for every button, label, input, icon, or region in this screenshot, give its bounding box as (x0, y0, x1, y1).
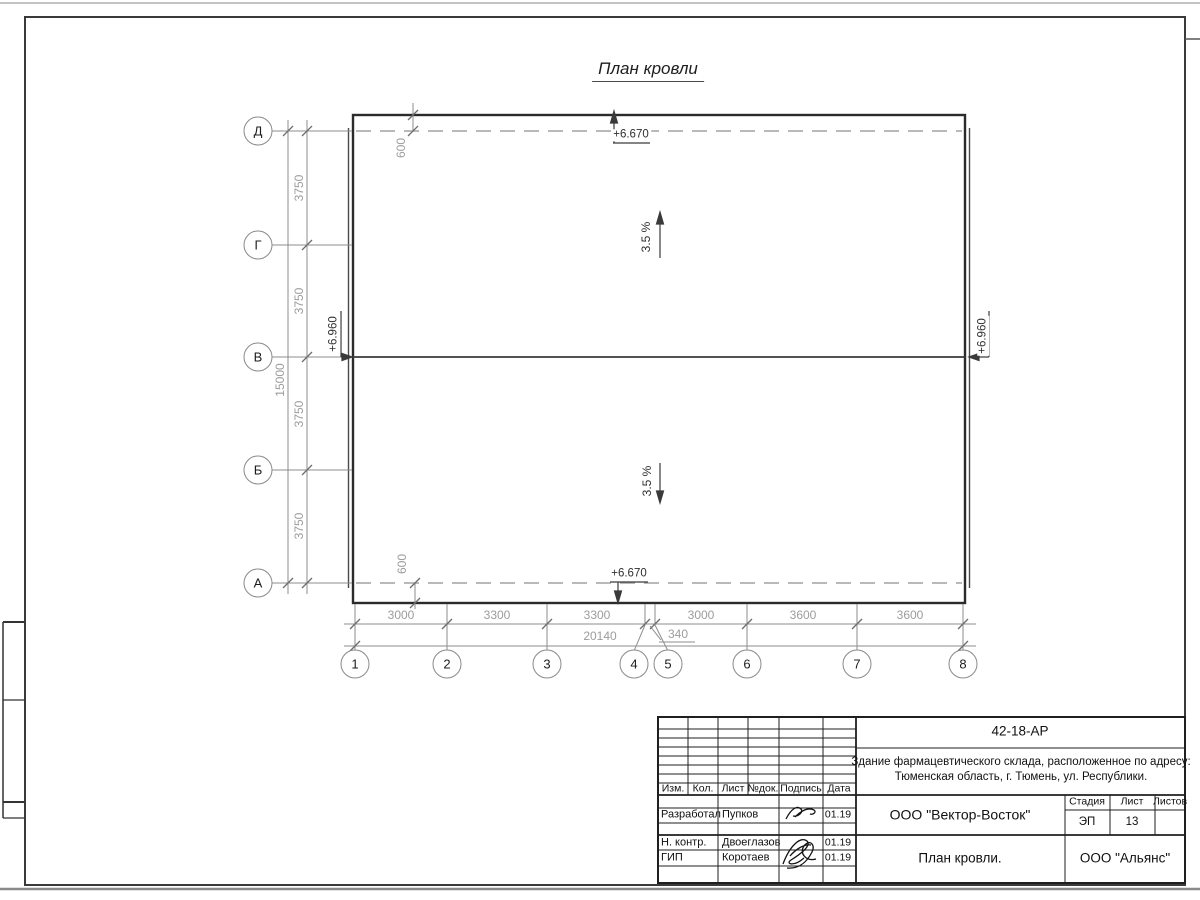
doc-code: 42-18-АР (991, 724, 1048, 741)
axis-bubble-row-d: Д (244, 117, 273, 146)
project-address-line1: Здание фармацевтического склада, располо… (851, 755, 1190, 769)
sheets-header: Листов (1153, 795, 1187, 808)
col-header-data: Дата (827, 782, 850, 795)
axis-bubble-row-g: Г (244, 231, 273, 260)
name-developer: Пупков (722, 810, 758, 821)
date-ncontrol: 01.19 (825, 836, 851, 849)
col-header-podpis: Подпись (780, 782, 822, 795)
col-header-kol: Кол. (693, 782, 714, 795)
axis-bubble-col-2: 2 (433, 650, 462, 679)
date-gip: 01.19 (825, 851, 851, 864)
dim-row-2: 3750 (293, 286, 305, 317)
dim-col-gap: 340 (666, 628, 690, 640)
stage-header: Стадия (1069, 795, 1105, 808)
sheet-number: 13 (1126, 815, 1139, 829)
slope-label-top: 3.5 % (640, 220, 652, 255)
dim-col-2: 3300 (482, 609, 513, 621)
design-org: ООО "Вектор-Восток" (890, 806, 1031, 824)
elevation-mark-left: +6.960 (328, 314, 340, 354)
axis-bubble-row-v: В (244, 343, 273, 372)
drawing-sheet: План кровли Д Г В Б А 1 2 3 4 5 6 7 8 37… (0, 0, 1200, 900)
axis-bubble-row-a: А (244, 569, 273, 598)
axis-bubble-col-4: 4 (620, 650, 649, 679)
axis-bubble-col-1: 1 (341, 650, 370, 679)
dim-col-6: 3600 (895, 609, 926, 621)
elevation-mark-top: +6.670 (611, 129, 651, 141)
dim-col-3: 3300 (582, 609, 613, 621)
signature-developer (786, 807, 815, 819)
name-gip: Коротаев (722, 853, 770, 864)
axis-bubble-col-5: 5 (654, 650, 683, 679)
dim-overhang-bottom: 600 (396, 552, 408, 576)
slope-label-bottom: 3.5 % (641, 464, 653, 499)
contractor-org: ООО "Альянс" (1080, 851, 1170, 868)
dim-col-1: 3000 (386, 609, 417, 621)
elevation-mark-right: +6.960 (977, 316, 989, 356)
dim-row-total: 15000 (274, 361, 286, 398)
role-ncontrol: Н. контр. (661, 838, 706, 849)
axis-bubble-col-6: 6 (733, 650, 762, 679)
sheet-title: План кровли. (918, 851, 1001, 868)
dim-row-4: 3750 (293, 511, 305, 542)
dim-overhang-top: 600 (395, 136, 407, 160)
axis-bubble-col-7: 7 (843, 650, 872, 679)
dim-row-1: 3750 (293, 173, 305, 204)
axis-bubble-row-b: Б (244, 456, 273, 485)
col-header-izm: Изм. (662, 782, 685, 795)
col-header-ndok: №док. (748, 782, 779, 795)
left-attribute-strip (3, 622, 25, 818)
project-address-line2: Тюменская область, г. Тюмень, ул. Респуб… (895, 770, 1148, 784)
role-gip: ГИП (661, 853, 683, 864)
col-header-list: Лист (722, 782, 745, 795)
drawing-title: План кровли (592, 60, 704, 82)
axis-bubble-col-3: 3 (533, 650, 562, 679)
signature-gip (783, 840, 816, 868)
role-developer: Разработал (661, 810, 721, 821)
elevation-mark-bottom: +6.670 (609, 568, 649, 580)
dim-col-5: 3600 (788, 609, 819, 621)
dim-col-total: 20140 (581, 630, 618, 642)
axis-bubble-col-8: 8 (949, 650, 978, 679)
date-developer: 01.19 (825, 808, 851, 821)
dim-row-3: 3750 (293, 399, 305, 430)
roof-outline (353, 115, 965, 603)
sheet-header: Лист (1121, 795, 1144, 808)
signatures (783, 807, 816, 868)
stage-value: ЭП (1079, 815, 1096, 829)
dim-col-4: 3000 (686, 609, 717, 621)
name-ncontrol: Двоеглазов (722, 838, 780, 849)
